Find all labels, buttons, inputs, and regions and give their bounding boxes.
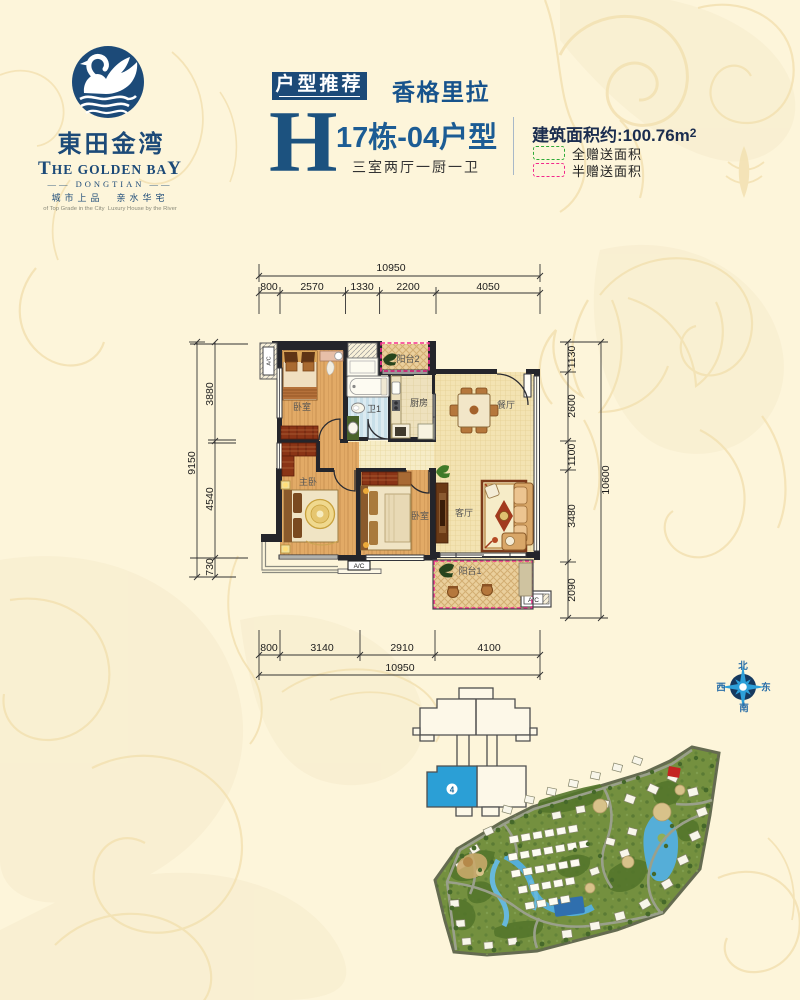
svg-text:南: 南 [739,702,749,714]
svg-text:800: 800 [260,281,278,293]
svg-text:4: 4 [450,786,455,795]
svg-text:4540: 4540 [204,487,216,511]
svg-text:3880: 3880 [204,382,216,406]
svg-text:北: 北 [738,660,748,672]
svg-text:3140: 3140 [310,642,334,654]
svg-text:卧室: 卧室 [293,401,311,412]
svg-text:2600: 2600 [566,394,578,418]
svg-text:A/C: A/C [267,356,273,365]
svg-text:A/C: A/C [354,563,365,570]
svg-text:阳台1: 阳台1 [458,565,481,576]
svg-text:2910: 2910 [390,642,414,654]
svg-text:2570: 2570 [300,281,324,293]
svg-text:1130: 1130 [566,346,578,369]
svg-text:1100: 1100 [566,444,578,467]
svg-text:阳台2: 阳台2 [396,353,419,364]
svg-text:10950: 10950 [385,662,414,674]
svg-text:客厅: 客厅 [455,507,473,518]
svg-text:餐厅: 餐厅 [497,399,515,410]
svg-text:800: 800 [260,642,278,654]
svg-text:主卧: 主卧 [299,476,317,487]
svg-text:西: 西 [716,683,726,694]
svg-text:东: 东 [761,682,771,694]
svg-text:1330: 1330 [350,281,374,293]
svg-text:卧室: 卧室 [411,510,429,521]
svg-text:厨房: 厨房 [410,397,428,408]
svg-text:4050: 4050 [476,281,500,293]
svg-text:10950: 10950 [376,262,405,274]
svg-text:9150: 9150 [186,451,198,475]
svg-text:730: 730 [204,558,216,576]
svg-text:10600: 10600 [600,465,612,494]
svg-text:4100: 4100 [477,642,501,654]
svg-text:2200: 2200 [396,281,420,293]
svg-text:卫1: 卫1 [367,404,381,414]
svg-text:A/C: A/C [528,597,539,604]
svg-text:2090: 2090 [566,578,578,602]
svg-text:3480: 3480 [566,504,578,528]
